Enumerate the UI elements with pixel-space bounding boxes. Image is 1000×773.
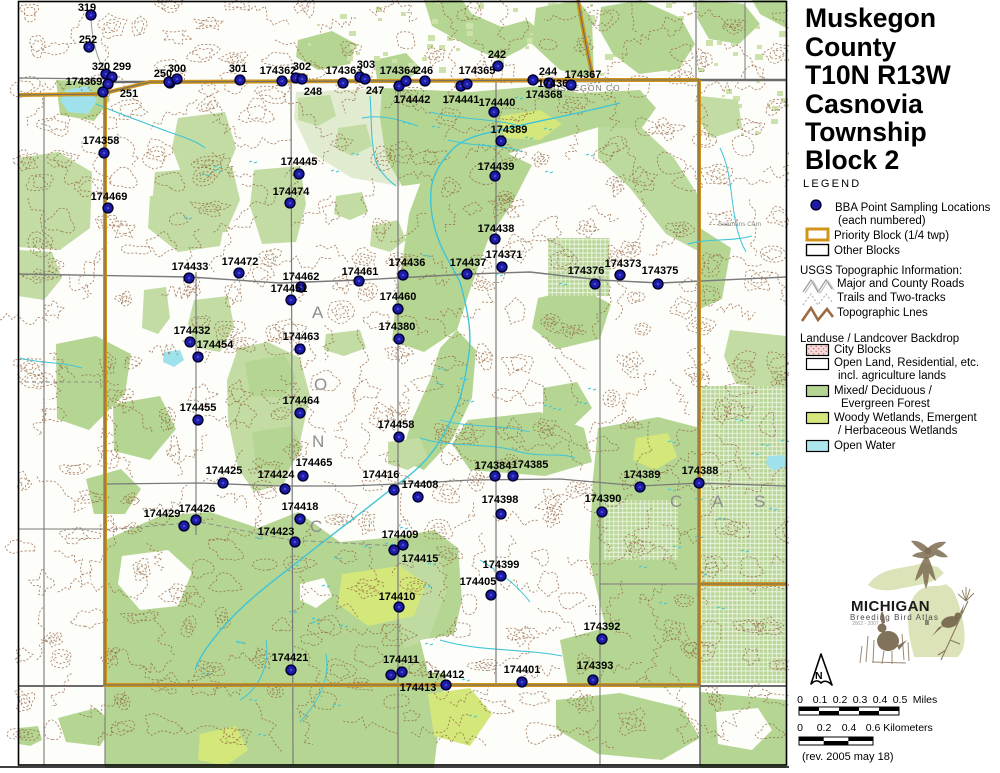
svg-text:174364: 174364 — [380, 65, 418, 77]
svg-text:Seamans Cem: Seamans Cem — [718, 221, 761, 228]
svg-text:174410: 174410 — [379, 591, 416, 603]
svg-text:242: 242 — [488, 49, 506, 61]
svg-text:174445: 174445 — [281, 156, 318, 168]
svg-text:174401: 174401 — [504, 664, 541, 676]
svg-text:174399: 174399 — [483, 559, 520, 571]
svg-text:174469: 174469 — [91, 191, 128, 203]
svg-text:(each numbered): (each numbered) — [838, 215, 926, 227]
svg-text:174465: 174465 — [296, 457, 333, 469]
svg-text:A: A — [312, 303, 324, 322]
svg-text:Mixed/ Deciduous /: Mixed/ Deciduous / — [834, 385, 933, 397]
svg-text:Major and County Roads: Major and County Roads — [837, 278, 964, 290]
svg-text:174405: 174405 — [460, 576, 497, 588]
svg-text:174426: 174426 — [179, 503, 216, 515]
svg-text:174409: 174409 — [382, 529, 419, 541]
svg-text:174464: 174464 — [283, 395, 321, 407]
svg-text:302: 302 — [293, 61, 311, 73]
svg-text:BBA Point Sampling Locations: BBA Point Sampling Locations — [835, 202, 991, 214]
svg-text:174436: 174436 — [389, 257, 426, 269]
svg-text:174362: 174362 — [260, 65, 297, 77]
svg-text:174437: 174437 — [450, 257, 487, 269]
svg-text:N: N — [312, 432, 324, 451]
svg-text:174373: 174373 — [605, 258, 642, 270]
svg-text:City Blocks: City Blocks — [834, 344, 891, 356]
svg-text:174432: 174432 — [174, 325, 211, 337]
svg-text:174375: 174375 — [642, 265, 679, 277]
svg-text:174416: 174416 — [363, 469, 400, 481]
svg-text:174462: 174462 — [283, 271, 320, 283]
svg-text:174421: 174421 — [272, 652, 309, 664]
svg-text:A: A — [712, 492, 724, 511]
svg-text:Evergreen Forest: Evergreen Forest — [841, 398, 931, 410]
svg-text:Other Blocks: Other Blocks — [834, 245, 900, 257]
svg-text:O: O — [314, 375, 327, 394]
svg-text:174367: 174367 — [565, 69, 602, 81]
svg-text:174393: 174393 — [577, 660, 614, 672]
svg-text:248: 248 — [304, 86, 322, 98]
svg-text:N: N — [815, 670, 823, 682]
svg-text:174455: 174455 — [180, 402, 217, 414]
svg-text:II: II — [925, 620, 929, 627]
svg-text:174358: 174358 — [83, 135, 120, 147]
svg-text:(rev. 2005 may 18): (rev. 2005 may 18) — [802, 751, 894, 763]
svg-text:Open Land, Residential, etc.: Open Land, Residential, etc. — [834, 357, 979, 369]
svg-text:174438: 174438 — [478, 223, 515, 235]
svg-text:174365: 174365 — [459, 65, 496, 77]
svg-text:0.4: 0.4 — [873, 694, 888, 706]
svg-text:244: 244 — [539, 66, 558, 78]
svg-text:174384: 174384 — [475, 460, 513, 472]
svg-text:C: C — [310, 517, 322, 536]
svg-text:0: 0 — [797, 694, 803, 706]
svg-text:174423: 174423 — [258, 526, 295, 538]
svg-text:319: 319 — [78, 2, 96, 14]
svg-text:Block 2: Block 2 — [805, 145, 899, 175]
svg-text:174442: 174442 — [394, 94, 431, 106]
svg-text:LEGEND: LEGEND — [803, 178, 861, 190]
svg-text:174458: 174458 — [378, 419, 415, 431]
svg-text:2002 - 2007: 2002 - 2007 — [852, 621, 879, 627]
svg-text:T10N R13W: T10N R13W — [805, 60, 951, 90]
svg-text:174390: 174390 — [585, 493, 622, 505]
svg-text:174413: 174413 — [400, 682, 437, 694]
svg-text:247: 247 — [366, 85, 384, 97]
svg-text:incl. agriculture lands: incl. agriculture lands — [838, 370, 946, 382]
svg-text:County: County — [805, 32, 897, 62]
svg-text:174408: 174408 — [402, 479, 439, 491]
svg-text:0: 0 — [797, 722, 803, 734]
svg-text:0.2: 0.2 — [817, 722, 832, 734]
svg-text:174418: 174418 — [282, 501, 319, 513]
svg-text:Open Water: Open Water — [834, 440, 896, 452]
svg-text:174369: 174369 — [66, 76, 103, 88]
svg-text:0.5: 0.5 — [893, 694, 908, 706]
svg-text:174463: 174463 — [283, 331, 320, 343]
svg-text:0.2: 0.2 — [833, 694, 848, 706]
svg-text:174385: 174385 — [512, 459, 549, 471]
svg-text:174392: 174392 — [584, 621, 621, 633]
svg-text:252: 252 — [79, 34, 97, 46]
svg-text:174398: 174398 — [482, 494, 519, 506]
svg-text:174474: 174474 — [273, 186, 311, 198]
svg-text:174388: 174388 — [682, 465, 719, 477]
svg-text:174472: 174472 — [222, 256, 259, 268]
svg-text:Casnovia: Casnovia — [805, 89, 923, 119]
svg-text:174454: 174454 — [197, 339, 235, 351]
svg-text:174439: 174439 — [478, 161, 515, 173]
svg-text:Priority Block (1/4 twp): Priority Block (1/4 twp) — [834, 230, 949, 242]
svg-text:174415: 174415 — [402, 553, 439, 565]
svg-text:174451: 174451 — [271, 283, 308, 295]
svg-text:0.1: 0.1 — [813, 694, 828, 706]
svg-text:174460: 174460 — [380, 291, 417, 303]
svg-text:174380: 174380 — [379, 321, 416, 333]
svg-text:0.3: 0.3 — [853, 694, 868, 706]
svg-text:S: S — [754, 492, 765, 511]
svg-text:/ Herbaceous Wetlands: / Herbaceous Wetlands — [838, 425, 958, 437]
svg-text:174371: 174371 — [486, 249, 523, 261]
svg-text:174440: 174440 — [479, 97, 516, 109]
svg-text:174425: 174425 — [206, 465, 243, 477]
svg-text:174411: 174411 — [383, 654, 419, 666]
svg-text:251: 251 — [120, 88, 138, 100]
svg-text:Trails and Two-tracks: Trails and Two-tracks — [837, 292, 946, 304]
svg-text:Woody Wetlands, Emergent: Woody Wetlands, Emergent — [834, 412, 978, 424]
svg-text:174389: 174389 — [624, 469, 661, 481]
svg-text:301: 301 — [229, 63, 247, 75]
svg-text:174376: 174376 — [568, 265, 605, 277]
svg-text:174424: 174424 — [258, 469, 296, 481]
svg-text:174433: 174433 — [172, 261, 209, 273]
svg-text:Muskegon: Muskegon — [805, 3, 936, 33]
svg-text:246: 246 — [415, 65, 433, 77]
svg-text:300: 300 — [168, 63, 186, 75]
svg-text:0.6: 0.6 — [866, 722, 881, 734]
svg-text:0.4: 0.4 — [842, 722, 857, 734]
svg-text:299: 299 — [113, 61, 131, 73]
svg-text:174441: 174441 — [443, 94, 480, 106]
svg-text:174429: 174429 — [144, 508, 181, 520]
svg-text:USGS Topographic Information:: USGS Topographic Information: — [800, 265, 962, 277]
svg-text:Miles: Miles — [913, 694, 938, 706]
svg-text:Kilometers: Kilometers — [883, 722, 933, 734]
svg-text:174412: 174412 — [428, 669, 465, 681]
svg-text:C: C — [670, 492, 682, 511]
svg-text:303: 303 — [357, 59, 375, 71]
svg-text:174368: 174368 — [526, 89, 563, 101]
svg-text:174389: 174389 — [491, 124, 528, 136]
svg-text:174461: 174461 — [342, 266, 379, 278]
svg-text:Township: Township — [805, 117, 927, 147]
svg-text:320: 320 — [92, 61, 110, 73]
svg-text:Topographic Lnes: Topographic Lnes — [837, 307, 928, 319]
